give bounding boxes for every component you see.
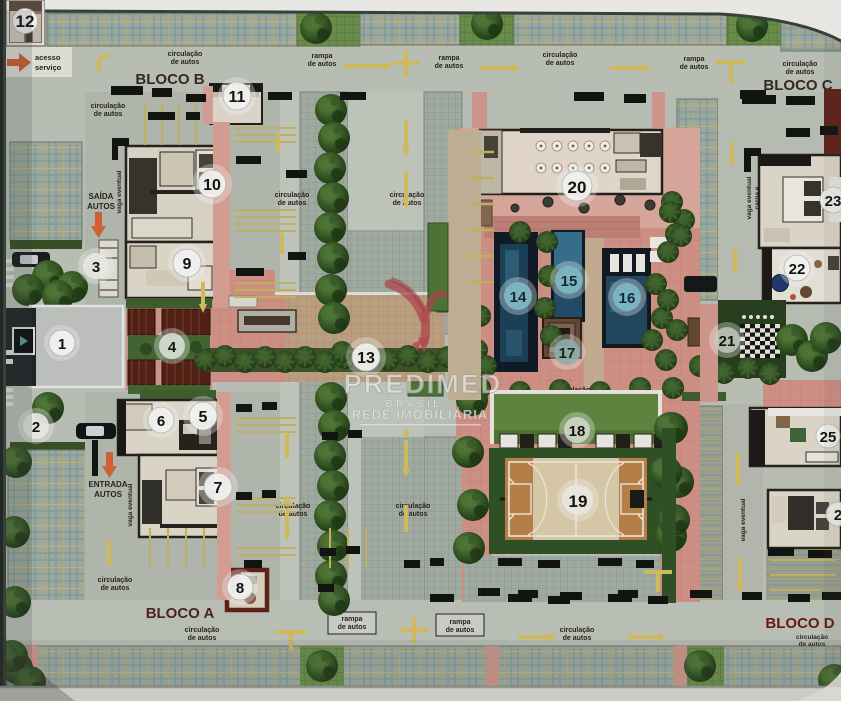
svg-text:15: 15: [561, 273, 578, 290]
svg-text:5: 5: [199, 409, 208, 426]
svg-text:SAÍDA: SAÍDA: [89, 192, 114, 201]
svg-text:BLOCO C: BLOCO C: [763, 77, 832, 94]
svg-text:circulação: circulação: [396, 503, 431, 510]
svg-text:4: 4: [168, 339, 177, 356]
svg-text:de autos: de autos: [338, 624, 367, 631]
svg-text:16: 16: [619, 290, 636, 307]
svg-text:vaga eventual: vaga eventual: [127, 483, 134, 526]
svg-text:vaga eventual: vaga eventual: [740, 498, 747, 541]
svg-text:BLOCO A: BLOCO A: [146, 605, 215, 622]
svg-text:vaga eventual: vaga eventual: [746, 176, 753, 219]
svg-text:de autos: de autos: [278, 200, 307, 207]
svg-text:20: 20: [568, 178, 587, 197]
svg-text:circulação: circulação: [98, 577, 133, 584]
svg-text:vaga eventual: vaga eventual: [116, 170, 123, 213]
svg-text:1: 1: [58, 336, 66, 353]
svg-text:rampa: rampa: [683, 56, 704, 63]
svg-text:de autos: de autos: [786, 69, 815, 76]
svg-text:21: 21: [719, 333, 736, 350]
svg-text:circulação: circulação: [168, 51, 203, 58]
svg-text:14: 14: [510, 289, 527, 306]
svg-text:19: 19: [569, 492, 588, 511]
svg-text:de autos: de autos: [399, 511, 428, 518]
svg-text:7: 7: [214, 480, 223, 497]
svg-text:11: 11: [229, 89, 246, 106]
svg-text:circulação: circulação: [543, 52, 578, 59]
svg-text:de autos: de autos: [308, 61, 337, 68]
svg-text:de autos: de autos: [546, 60, 575, 67]
svg-text:circulação: circulação: [796, 634, 828, 641]
svg-text:de autos: de autos: [435, 63, 464, 70]
svg-text:6: 6: [157, 413, 165, 430]
svg-text:2: 2: [32, 419, 40, 436]
svg-text:circulação: circulação: [560, 627, 595, 634]
svg-text:rampa: rampa: [311, 53, 332, 60]
svg-text:circulação: circulação: [185, 627, 220, 634]
svg-text:circulação: circulação: [275, 192, 310, 199]
svg-text:rampa: rampa: [341, 616, 362, 623]
svg-text:REDE IMOBILIÁRIA: REDE IMOBILIÁRIA: [352, 407, 489, 422]
svg-text:BLOCO B: BLOCO B: [135, 71, 204, 88]
svg-text:3: 3: [92, 259, 100, 276]
svg-text:AUTOS: AUTOS: [94, 490, 123, 499]
svg-text:17: 17: [559, 345, 576, 362]
svg-text:10: 10: [203, 177, 221, 194]
svg-text:de autos: de autos: [171, 59, 200, 66]
svg-text:de autos: de autos: [446, 627, 475, 634]
svg-text:22: 22: [789, 261, 806, 278]
svg-text:de autos: de autos: [680, 64, 709, 71]
svg-text:ENTRADA: ENTRADA: [88, 480, 127, 489]
svg-text:18: 18: [569, 423, 586, 440]
svg-text:serviço: serviço: [35, 63, 62, 72]
svg-text:de autos: de autos: [101, 585, 130, 592]
svg-text:PREDIMED: PREDIMED: [344, 369, 503, 399]
svg-text:circulação: circulação: [783, 61, 818, 68]
svg-text:AUTOS: AUTOS: [87, 202, 116, 211]
svg-text:9: 9: [183, 256, 192, 273]
svg-text:acesso: acesso: [35, 53, 61, 62]
svg-text:de autos: de autos: [94, 111, 123, 118]
svg-text:circulação: circulação: [91, 103, 126, 110]
svg-text:rampa: rampa: [449, 619, 470, 626]
svg-text:8: 8: [236, 580, 244, 597]
svg-text:rampa: rampa: [438, 55, 459, 62]
svg-text:13: 13: [357, 350, 375, 367]
